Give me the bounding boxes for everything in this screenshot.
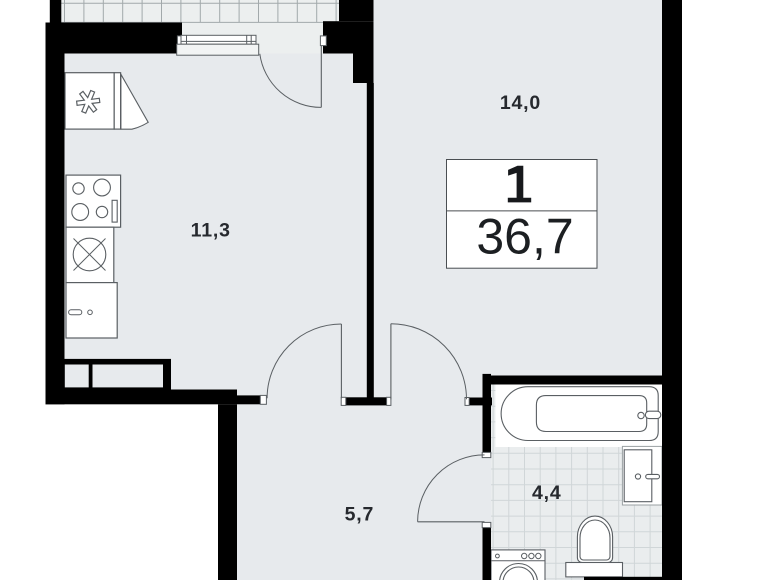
svg-text:5,7: 5,7 — [345, 504, 375, 526]
svg-text:4,4: 4,4 — [532, 482, 562, 504]
svg-text:11,3: 11,3 — [191, 220, 231, 242]
svg-text:36,7: 36,7 — [476, 208, 573, 264]
svg-text:14,0: 14,0 — [500, 92, 541, 114]
